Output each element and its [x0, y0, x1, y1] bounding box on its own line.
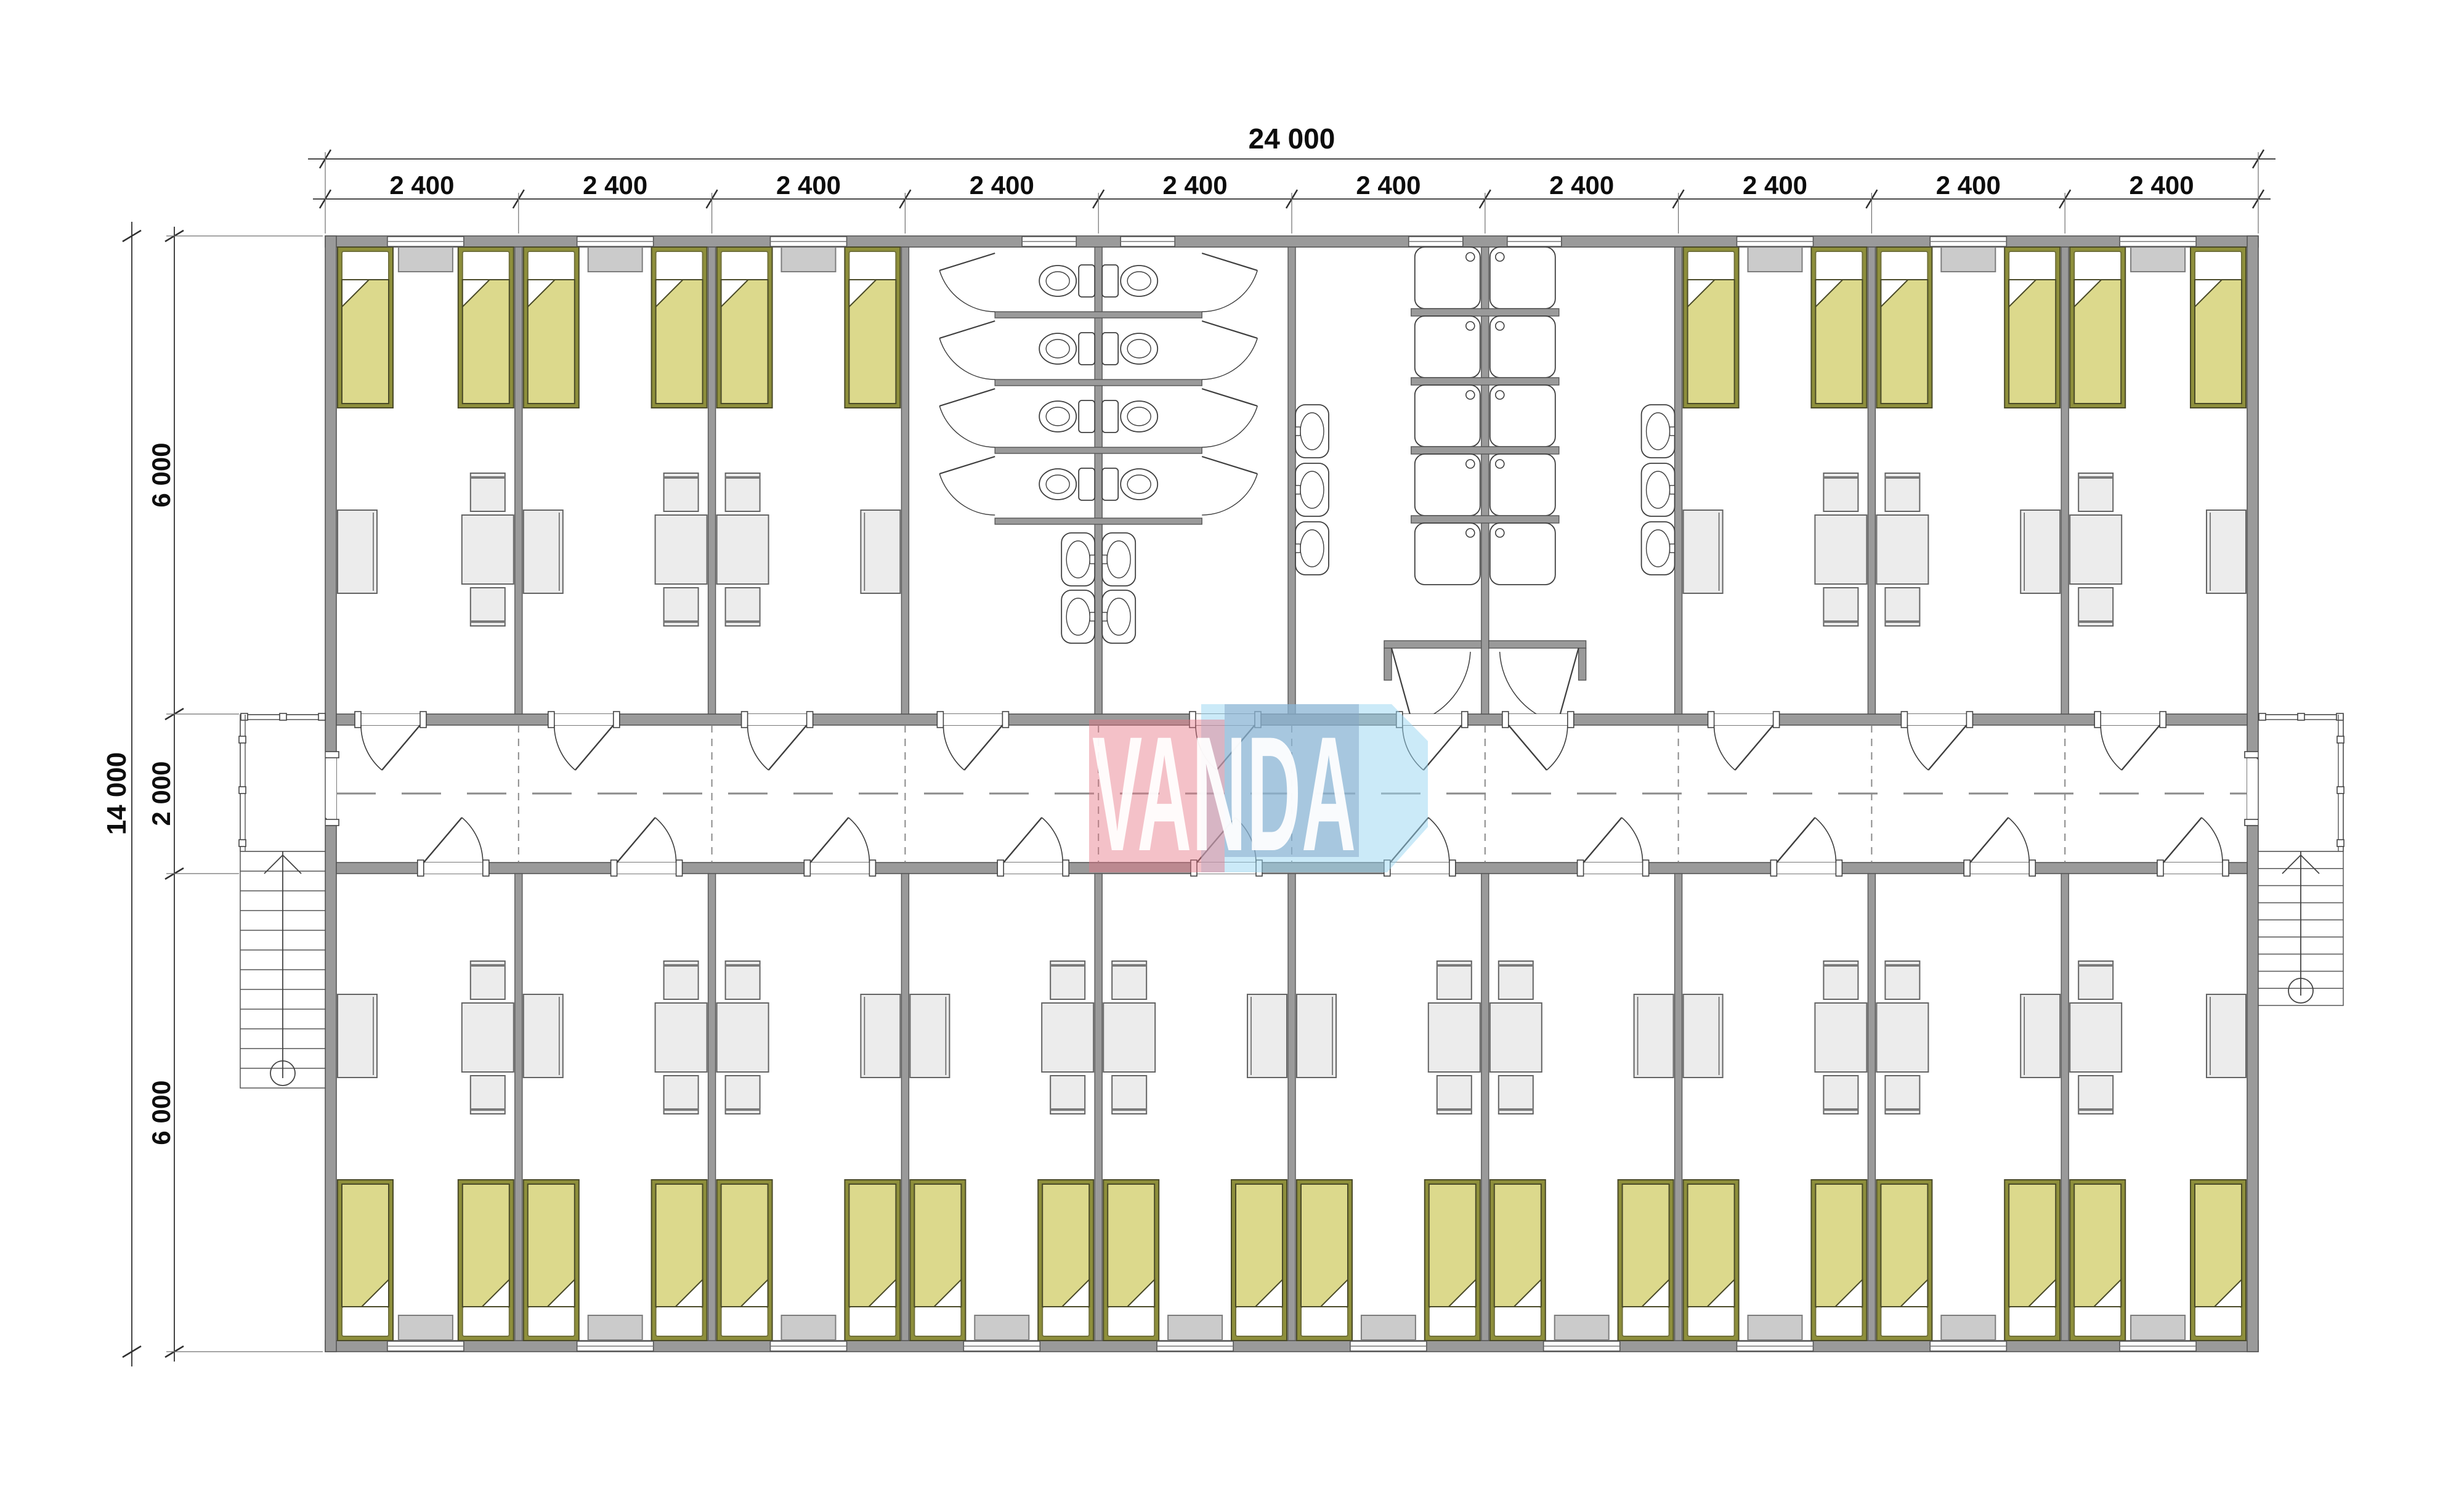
table: [1876, 1003, 1928, 1072]
partition-wall: [515, 247, 522, 714]
nightstand: [782, 247, 836, 272]
dim-label-module-width: 2 400: [1919, 171, 2017, 200]
toilet-seat: [1046, 272, 1069, 290]
nightstand: [2131, 247, 2185, 272]
door-jamb: [2223, 860, 2229, 876]
bed-pillow: [528, 1307, 575, 1336]
partition-wall: [901, 247, 909, 714]
toilet-seat: [1046, 407, 1069, 426]
railing-post: [2337, 840, 2344, 846]
chair: [1885, 588, 1919, 626]
door-jamb: [1643, 860, 1649, 876]
door-swing-arc: [1547, 725, 1568, 770]
bed-pillow: [656, 251, 703, 281]
shower-drain: [1466, 253, 1475, 261]
bed-pillow: [1429, 1307, 1476, 1336]
vestibule-wall: [1579, 648, 1586, 680]
dim-label-module-width: 2 400: [1146, 171, 1244, 200]
door-opening: [1584, 863, 1643, 874]
nightstand: [588, 247, 642, 272]
dim-label-row-depth: 2 000: [147, 732, 176, 855]
bed-pillow: [1881, 1307, 1927, 1336]
railing-post: [2298, 713, 2304, 720]
bed-pillow: [1688, 251, 1735, 281]
bed-pillow: [342, 251, 389, 281]
dim-label-module-width: 2 400: [1726, 171, 1825, 200]
nightstand: [1941, 1315, 1995, 1340]
wardrobe: [524, 994, 563, 1078]
door-jamb: [1002, 712, 1008, 728]
bed-pillow: [849, 251, 896, 281]
vestibule-wall: [1384, 648, 1392, 680]
door-leaf: [382, 725, 420, 770]
door-jamb: [2157, 860, 2163, 876]
chair: [1050, 961, 1085, 999]
chair: [664, 1076, 699, 1114]
shower-drain: [1496, 322, 1504, 330]
door-leaf: [769, 725, 807, 770]
partition-wall: [1868, 247, 1875, 714]
toilet-seat: [1046, 339, 1069, 358]
wardrobe: [1684, 994, 1723, 1078]
chair: [726, 473, 760, 511]
dim-label-module-width: 2 400: [566, 171, 665, 200]
door-swing-arc: [1622, 818, 1643, 863]
door-swing-arc: [1714, 725, 1735, 770]
sink-tap: [1102, 555, 1107, 564]
vestibule-wall: [1384, 641, 1481, 648]
partition-wall: [1675, 874, 1682, 1341]
door-leaf: [617, 818, 655, 863]
table: [2070, 515, 2122, 584]
door-leaf: [939, 457, 995, 474]
door-opening: [2163, 863, 2223, 874]
door-jamb: [1770, 860, 1777, 876]
door-jamb: [1578, 860, 1584, 876]
wardrobe: [1297, 994, 1336, 1078]
nightstand: [1555, 1315, 1609, 1340]
bed-pillow: [2195, 251, 2242, 281]
door-leaf: [1003, 818, 1042, 863]
door-swing-arc: [939, 474, 995, 515]
sink-basin: [1647, 530, 1670, 567]
door-jamb: [1966, 712, 1972, 728]
door-opening: [1509, 714, 1568, 725]
door-leaf: [1202, 253, 1257, 270]
door-jamb: [869, 860, 875, 876]
door-jamb: [1063, 860, 1069, 876]
nightstand: [1941, 247, 1995, 272]
door-leaf: [1202, 389, 1257, 406]
table: [1429, 1003, 1480, 1072]
railing-post: [280, 713, 286, 720]
door-leaf: [1424, 725, 1462, 770]
door-jamb: [2160, 712, 2166, 728]
bed-pillow: [1301, 1307, 1348, 1336]
door-jamb: [1773, 712, 1780, 728]
wardrobe: [910, 994, 949, 1078]
railing-post: [2259, 713, 2266, 720]
chair: [726, 1076, 760, 1114]
door-opening: [1403, 714, 1462, 725]
door-opening: [2101, 714, 2160, 725]
sink-basin: [1066, 541, 1090, 578]
door-leaf: [1970, 818, 2008, 863]
bed-pillow: [721, 1307, 768, 1336]
door-swing-arc: [939, 270, 995, 312]
door-opening: [554, 714, 614, 725]
partition-wall: [1481, 247, 1489, 714]
door-swing-arc: [1429, 818, 1449, 863]
door-swing-arc: [939, 406, 995, 447]
wardrobe: [338, 510, 377, 593]
toilet-seat: [1127, 407, 1151, 426]
railing-post: [318, 713, 325, 720]
table: [2070, 1003, 2122, 1072]
chair: [664, 588, 699, 626]
door-leaf: [939, 389, 995, 406]
dim-label-row-depth: 6 000: [147, 1051, 176, 1174]
door-jamb: [804, 860, 810, 876]
door-opening: [325, 758, 336, 819]
sink-basin: [1647, 413, 1670, 450]
wardrobe: [2207, 510, 2246, 593]
sink-tap: [1090, 555, 1095, 564]
door-leaf: [1777, 818, 1815, 863]
railing-post: [239, 840, 246, 846]
door-swing-arc: [2008, 818, 2029, 863]
toilet-seat: [1127, 272, 1151, 290]
door-jamb: [1462, 712, 1468, 728]
bed-pillow: [1494, 1307, 1541, 1336]
door-opening: [424, 863, 483, 874]
nightstand: [2131, 1315, 2185, 1340]
chair: [1885, 473, 1919, 511]
table: [462, 1003, 514, 1072]
door-swing-arc: [2101, 725, 2122, 770]
partition-wall: [1675, 247, 1682, 714]
door-leaf: [939, 321, 995, 338]
toilet-tank: [1102, 468, 1118, 500]
dim-label-module-width: 2 400: [1339, 171, 1438, 200]
door-swing-arc: [1202, 338, 1257, 380]
wardrobe: [861, 994, 900, 1078]
door-jamb: [1964, 860, 1970, 876]
door-opening: [1390, 863, 1449, 874]
table: [717, 1003, 769, 1072]
door-leaf: [1202, 321, 1257, 338]
bed-pillow: [1236, 1307, 1283, 1336]
door-jamb: [676, 860, 683, 876]
wardrobe: [1684, 510, 1723, 593]
dim-label-module-width: 2 400: [760, 171, 858, 200]
partition-wall: [2061, 247, 2069, 714]
door-jamb: [611, 860, 617, 876]
dim-label-module-width: 2 400: [373, 171, 471, 200]
door-jamb: [1502, 712, 1509, 728]
railing-post: [239, 787, 246, 794]
shower-drain: [1496, 529, 1504, 537]
stall-wall: [995, 518, 1202, 524]
bed-pillow: [1815, 1307, 1862, 1336]
door-jamb: [614, 712, 620, 728]
railing-post: [2337, 787, 2344, 794]
door-swing-arc: [939, 338, 995, 380]
bed-pillow: [1815, 251, 1862, 281]
sink-basin: [1066, 598, 1090, 635]
partition-wall: [1288, 247, 1295, 714]
door-swing-arc: [554, 725, 575, 770]
door-swing-arc: [462, 818, 483, 863]
bed-pillow: [1623, 1307, 1669, 1336]
door-leaf: [1735, 725, 1773, 770]
sink-tap: [1295, 485, 1300, 494]
sink-tap: [1670, 544, 1675, 553]
shower-drain: [1496, 253, 1504, 261]
bed-pillow: [2009, 251, 2056, 281]
nightstand: [1168, 1315, 1222, 1340]
sink-tap: [1090, 612, 1095, 621]
door-opening: [1970, 863, 2029, 874]
stair-landing: [2258, 715, 2343, 851]
shower-drain: [1466, 529, 1475, 537]
partition-wall: [1868, 874, 1875, 1341]
shower-drain: [1466, 322, 1475, 330]
door-jamb: [548, 712, 554, 728]
door-opening: [1003, 863, 1063, 874]
dim-label-total-width: 24 000: [1199, 122, 1384, 155]
bed-pillow: [2009, 1307, 2056, 1336]
chair: [1112, 1076, 1146, 1114]
door-jamb: [1901, 712, 1907, 728]
bed-pillow: [528, 251, 575, 281]
chair: [2078, 961, 2113, 999]
door-opening: [361, 714, 420, 725]
table: [462, 515, 514, 584]
door-swing-arc: [1907, 725, 1928, 770]
sink-basin: [1107, 541, 1130, 578]
bed-pillow: [721, 251, 768, 281]
railing-post: [2337, 736, 2344, 743]
door-swing-arc: [1202, 474, 1257, 515]
door-jamb: [418, 860, 424, 876]
door-opening: [617, 863, 676, 874]
bed-pillow: [656, 1307, 703, 1336]
door-swing-arc: [748, 725, 769, 770]
door-leaf: [1584, 818, 1622, 863]
chair: [2078, 588, 2113, 626]
toilet-seat: [1127, 475, 1151, 493]
chair: [1112, 961, 1146, 999]
dim-label-row-depth: 6 000: [147, 413, 176, 537]
partition-wall: [1095, 874, 1102, 1341]
bed-pillow: [463, 251, 509, 281]
partition-wall: [1481, 874, 1489, 1341]
shower-drain: [1466, 391, 1475, 399]
door-leaf: [1509, 725, 1547, 770]
toilet-tank: [1102, 400, 1118, 432]
dim-label-module-width: 2 400: [2112, 171, 2211, 200]
toilet-tank: [1079, 468, 1095, 500]
nightstand: [1748, 1315, 1802, 1340]
door-swing-arc: [943, 725, 964, 770]
chair: [1823, 1076, 1858, 1114]
chair: [1823, 473, 1858, 511]
door-jamb: [420, 712, 426, 728]
dim-label-module-width: 2 400: [1533, 171, 1631, 200]
chair: [1050, 1076, 1085, 1114]
partition-wall: [901, 874, 909, 1341]
door-jamb: [807, 712, 813, 728]
wardrobe: [2207, 994, 2246, 1078]
table: [1876, 515, 1928, 584]
wardrobe: [338, 994, 377, 1078]
door-swing-arc: [2202, 818, 2223, 863]
door-opening: [1907, 714, 1966, 725]
door-swing-arc: [1202, 270, 1257, 312]
door-jamb: [1708, 712, 1714, 728]
shower-drain: [1496, 391, 1504, 399]
stall-wall: [1411, 309, 1559, 316]
toilet-tank: [1079, 333, 1095, 365]
door-swing-arc: [1815, 818, 1836, 863]
bed-pillow: [1042, 1307, 1089, 1336]
nightstand: [399, 1315, 453, 1340]
chair: [1437, 1076, 1472, 1114]
door-opening: [1777, 863, 1836, 874]
sink-tap: [1295, 427, 1300, 436]
partition-wall: [1288, 874, 1295, 1341]
floorplan-canvas: VANDA 24 000 14 000 2 4002 4002 4002 400…: [0, 0, 2464, 1502]
shower-drain: [1466, 460, 1475, 468]
stall-wall: [1411, 447, 1559, 454]
door-jamb: [742, 712, 748, 728]
chair: [2078, 1076, 2113, 1114]
door-leaf: [2122, 725, 2160, 770]
stall-wall: [995, 380, 1202, 386]
wardrobe: [1634, 994, 1674, 1078]
door-jamb: [2094, 712, 2101, 728]
bed-pillow: [914, 1307, 961, 1336]
bed-pillow: [1108, 1307, 1154, 1336]
sink-basin: [1300, 413, 1324, 450]
wardrobe: [2020, 510, 2060, 593]
door-leaf: [939, 253, 995, 270]
chair: [726, 961, 760, 999]
table: [1490, 1003, 1542, 1072]
table: [717, 515, 769, 584]
table: [655, 1003, 707, 1072]
door-jamb: [997, 860, 1003, 876]
nightstand: [1748, 247, 1802, 272]
sink-tap: [1670, 485, 1675, 494]
chair: [1823, 588, 1858, 626]
door-jamb: [2029, 860, 2035, 876]
door-leaf: [964, 725, 1002, 770]
bed-pillow: [2195, 1307, 2242, 1336]
chair: [471, 473, 505, 511]
table: [1042, 1003, 1093, 1072]
table: [655, 515, 707, 584]
dim-label-total-height: 14 000: [102, 726, 132, 861]
toilet-seat: [1046, 475, 1069, 493]
sink-tap: [1670, 427, 1675, 436]
door-swing-arc: [1042, 818, 1063, 863]
chair: [1823, 961, 1858, 999]
door-jamb: [1449, 860, 1456, 876]
door-swing-arc: [655, 818, 676, 863]
chair: [1885, 1076, 1919, 1114]
chair: [664, 961, 699, 999]
nightstand: [782, 1315, 836, 1340]
chair: [471, 588, 505, 626]
toilet-tank: [1102, 265, 1118, 297]
bed-pillow: [2074, 1307, 2121, 1336]
table: [1103, 1003, 1155, 1072]
sink-tap: [1295, 544, 1300, 553]
door-swing-arc: [848, 818, 869, 863]
sink-basin: [1300, 530, 1324, 567]
chair: [471, 961, 505, 999]
toilet-tank: [1079, 400, 1095, 432]
chair: [1885, 961, 1919, 999]
door-jamb: [1836, 860, 1842, 876]
partition-wall: [515, 874, 522, 1341]
door-jamb: [483, 860, 489, 876]
chair: [726, 588, 760, 626]
door-jamb: [1568, 712, 1574, 728]
bed-pillow: [1688, 1307, 1735, 1336]
door-leaf: [810, 818, 848, 863]
toilet-tank: [1102, 333, 1118, 365]
bed-pillow: [2074, 251, 2121, 281]
sink-basin: [1107, 598, 1130, 635]
stall-wall: [995, 447, 1202, 453]
chair: [1499, 1076, 1533, 1114]
chair: [1499, 961, 1533, 999]
chair: [2078, 473, 2113, 511]
door-leaf: [424, 818, 462, 863]
door-leaf: [1928, 725, 1966, 770]
door-jamb: [937, 712, 943, 728]
partition-wall: [708, 247, 716, 714]
partition-wall: [2061, 874, 2069, 1341]
sink-basin: [1300, 471, 1324, 508]
brand-logo-text: VANDA: [1092, 713, 1356, 876]
railing-post: [2336, 713, 2343, 720]
stall-wall: [1411, 516, 1559, 523]
bed-pillow: [342, 1307, 389, 1336]
wardrobe: [861, 510, 900, 593]
wardrobe: [2020, 994, 2060, 1078]
stall-wall: [995, 312, 1202, 318]
chair: [1437, 961, 1472, 999]
stall-wall: [1411, 378, 1559, 385]
toilet-tank: [1079, 265, 1095, 297]
sink-basin: [1647, 471, 1670, 508]
wardrobe: [1247, 994, 1287, 1078]
door-leaf: [2163, 818, 2202, 863]
door-opening: [748, 714, 807, 725]
shower-drain: [1496, 460, 1504, 468]
door-opening: [810, 863, 869, 874]
stair-landing: [240, 715, 325, 851]
table: [1815, 1003, 1866, 1072]
wardrobe: [524, 510, 563, 593]
door-leaf: [575, 725, 614, 770]
partition-wall: [708, 874, 716, 1341]
door-swing-arc: [1202, 406, 1257, 447]
